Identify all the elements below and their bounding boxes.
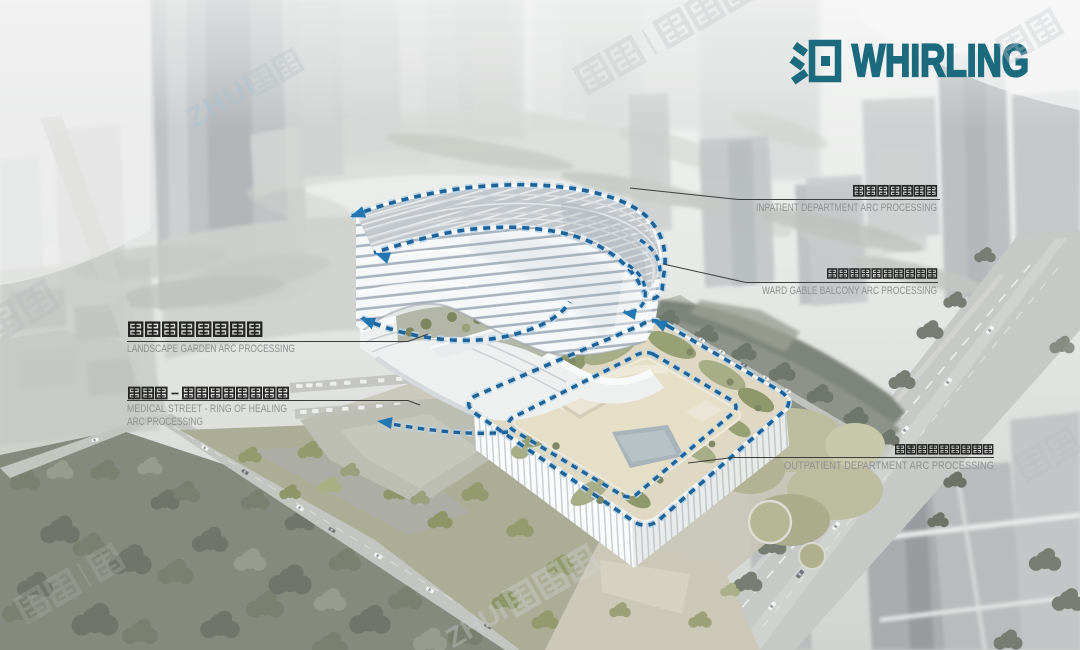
svg-text:ARC PROCESSING: ARC PROCESSING: [127, 416, 203, 428]
svg-text:WHIRLING: WHIRLING: [852, 35, 1029, 86]
svg-text:MEDICAL STREET - RING OF HEALI: MEDICAL STREET - RING OF HEALING: [127, 403, 287, 415]
svg-text:WARD GABLE BALCONY ARC PROCESS: WARD GABLE BALCONY ARC PROCESSING: [762, 285, 937, 297]
svg-text:OUTPATIENT DEPARTMENT ARC PROC: OUTPATIENT DEPARTMENT ARC PROCESSING: [784, 460, 994, 472]
svg-text:INPATIENT DEPARTMENT ARC PROCE: INPATIENT DEPARTMENT ARC PROCESSING: [756, 202, 937, 214]
svg-text:LANDSCAPE GARDEN ARC PROCESSIN: LANDSCAPE GARDEN ARC PROCESSING: [127, 343, 295, 355]
